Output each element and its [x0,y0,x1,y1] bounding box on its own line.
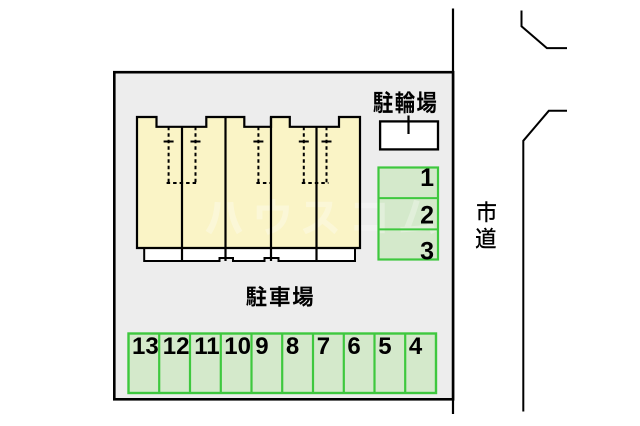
svg-text:8: 8 [286,333,299,360]
svg-text:13: 13 [132,333,159,360]
svg-text:9: 9 [255,333,268,360]
svg-text:1: 1 [420,164,434,192]
svg-text:5: 5 [378,333,391,360]
svg-text:2: 2 [420,201,434,229]
svg-text:10: 10 [224,333,251,360]
svg-text:7: 7 [317,333,330,360]
svg-text:12: 12 [163,333,190,360]
svg-text:6: 6 [347,333,360,360]
svg-text:11: 11 [194,333,219,360]
svg-text:4: 4 [409,333,423,360]
svg-text:3: 3 [420,237,434,265]
